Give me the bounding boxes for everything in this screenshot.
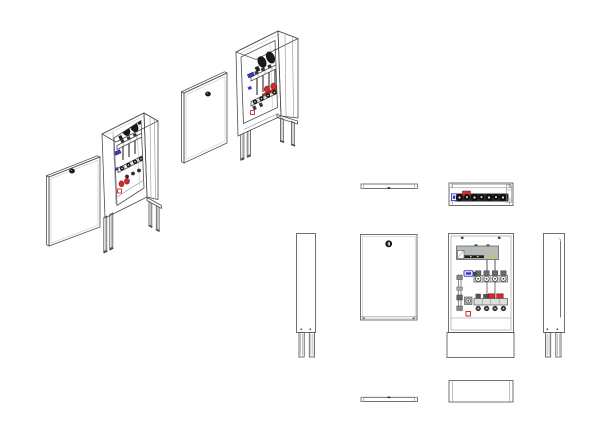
return-cap-red xyxy=(497,294,504,299)
riser-pipe xyxy=(457,274,463,311)
iso-door-panel-lower xyxy=(47,156,101,246)
supply-rail-front xyxy=(474,271,508,282)
terminal-yellow-block xyxy=(490,255,495,257)
pump-fitting xyxy=(465,297,473,305)
door-lock-icon xyxy=(385,240,392,247)
iso-exploded-upper xyxy=(182,31,299,163)
view-cabinet-top xyxy=(449,183,513,206)
iso-cabinet-open-lower xyxy=(102,113,162,253)
supply-valve-blue xyxy=(247,72,254,78)
leg-skirt xyxy=(447,333,514,358)
wiring-box xyxy=(457,244,499,259)
view-cabinet-front xyxy=(447,234,514,358)
door-top-edge xyxy=(47,156,101,177)
legs xyxy=(546,333,562,358)
supply-valve-blue-front xyxy=(464,271,477,277)
drain-red-marker xyxy=(118,189,122,193)
view-door-front xyxy=(361,235,418,321)
return-body-red xyxy=(119,181,124,187)
knob-mark xyxy=(388,187,391,189)
legs xyxy=(299,333,315,358)
door-knob-icon xyxy=(205,92,210,97)
return-cap-red xyxy=(488,294,495,299)
iso-cabinet-open-upper xyxy=(236,31,298,161)
view-cabinet-bottom xyxy=(449,381,513,403)
ortho-views xyxy=(297,183,565,402)
view-cabinet-side-left xyxy=(297,234,316,358)
door-face xyxy=(184,73,227,163)
drawing-canvas xyxy=(0,0,600,425)
iso-exploded-lower xyxy=(47,113,162,253)
door-top-edge xyxy=(182,72,228,93)
bottom-panel-seam xyxy=(244,113,278,129)
drain-red-marker xyxy=(251,111,255,115)
view-door-top xyxy=(361,184,418,189)
view-cabinet-side-right xyxy=(544,234,565,358)
drain-red-marker xyxy=(466,312,471,317)
mounting-legs-lower xyxy=(103,198,161,254)
door-knob-icon xyxy=(69,169,74,174)
knob-mark xyxy=(388,397,391,399)
view-door-bottom xyxy=(361,397,418,402)
supply-valve-blue xyxy=(114,150,121,155)
iso-door-panel-upper xyxy=(182,72,228,163)
return-rail-front xyxy=(474,294,508,311)
